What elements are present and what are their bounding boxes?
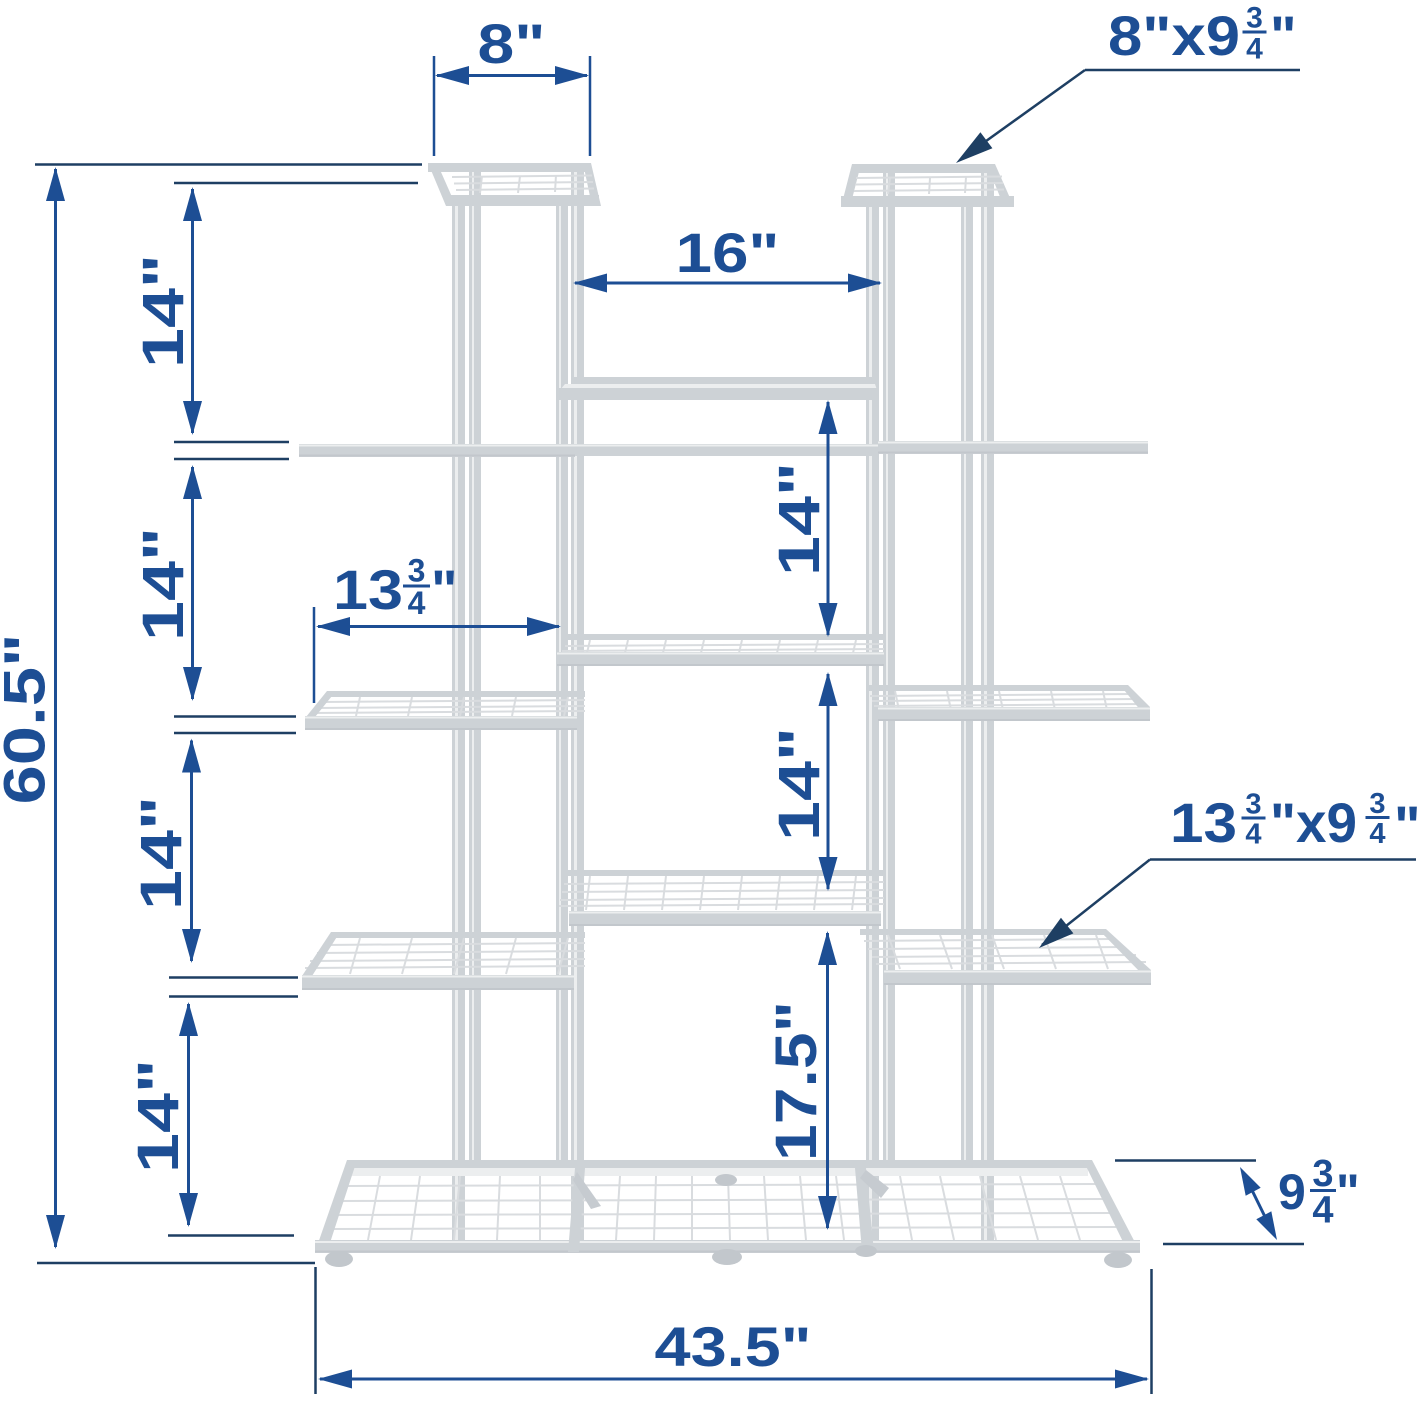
svg-text:4: 4 bbox=[408, 585, 426, 621]
svg-text:4: 4 bbox=[1312, 1190, 1333, 1232]
svg-text:17.5": 17.5" bbox=[764, 1001, 829, 1161]
svg-text:"x9: "x9 bbox=[1270, 791, 1357, 854]
svg-text:14": 14" bbox=[129, 796, 194, 910]
svg-text:9: 9 bbox=[1278, 1164, 1306, 1220]
svg-text:14": 14" bbox=[131, 527, 196, 641]
svg-text:3: 3 bbox=[1312, 1153, 1333, 1195]
svg-text:": " bbox=[1270, 4, 1297, 67]
svg-text:3: 3 bbox=[408, 553, 426, 589]
svg-text:16": 16" bbox=[676, 221, 780, 284]
svg-text:14": 14" bbox=[126, 1059, 191, 1173]
svg-text:8"x9: 8"x9 bbox=[1108, 4, 1240, 67]
svg-text:4: 4 bbox=[1245, 819, 1261, 851]
svg-text:": " bbox=[1336, 1164, 1360, 1220]
svg-text:4: 4 bbox=[1369, 818, 1385, 850]
svg-text:3: 3 bbox=[1246, 2, 1263, 35]
svg-text:14": 14" bbox=[767, 727, 832, 841]
svg-text:4: 4 bbox=[1246, 32, 1263, 65]
svg-text:13: 13 bbox=[333, 558, 403, 621]
svg-text:3: 3 bbox=[1245, 789, 1261, 821]
svg-text:": " bbox=[1394, 794, 1420, 857]
svg-text:43.5": 43.5" bbox=[655, 1315, 812, 1378]
svg-text:3: 3 bbox=[1369, 788, 1385, 820]
svg-text:": " bbox=[431, 558, 458, 621]
svg-text:14": 14" bbox=[767, 462, 832, 576]
svg-text:8": 8" bbox=[478, 12, 546, 75]
svg-text:14": 14" bbox=[131, 254, 196, 368]
svg-text:60.5": 60.5" bbox=[0, 634, 58, 805]
svg-text:13: 13 bbox=[1170, 791, 1237, 854]
